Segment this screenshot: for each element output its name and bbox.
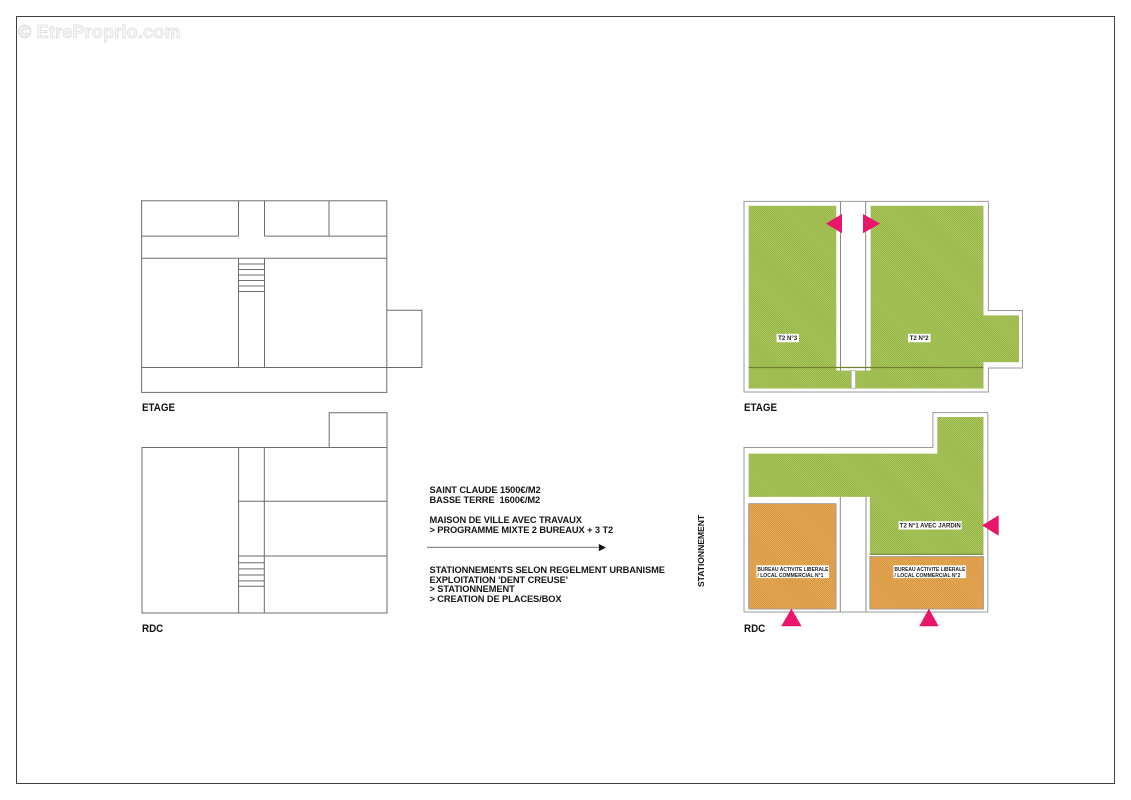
svg-text:BUREAU ACTIVITE LIBERALE: BUREAU ACTIVITE LIBERALE (757, 567, 828, 573)
svg-text:T2 N°3: T2 N°3 (778, 336, 798, 342)
svg-text:T2 N°2: T2 N°2 (910, 336, 930, 342)
svg-text:/ LOCAL COMMERCIAL N°2: / LOCAL COMMERCIAL N°2 (894, 573, 960, 579)
svg-text:T2 N°1 AVEC JARDIN: T2 N°1 AVEC JARDIN (900, 524, 961, 530)
svg-text:/ LOCAL COMMERCIAL N°1: / LOCAL COMMERCIAL N°1 (757, 573, 823, 579)
svg-text:BUREAU ACTIVITE LIBERALE: BUREAU ACTIVITE LIBERALE (894, 567, 965, 573)
